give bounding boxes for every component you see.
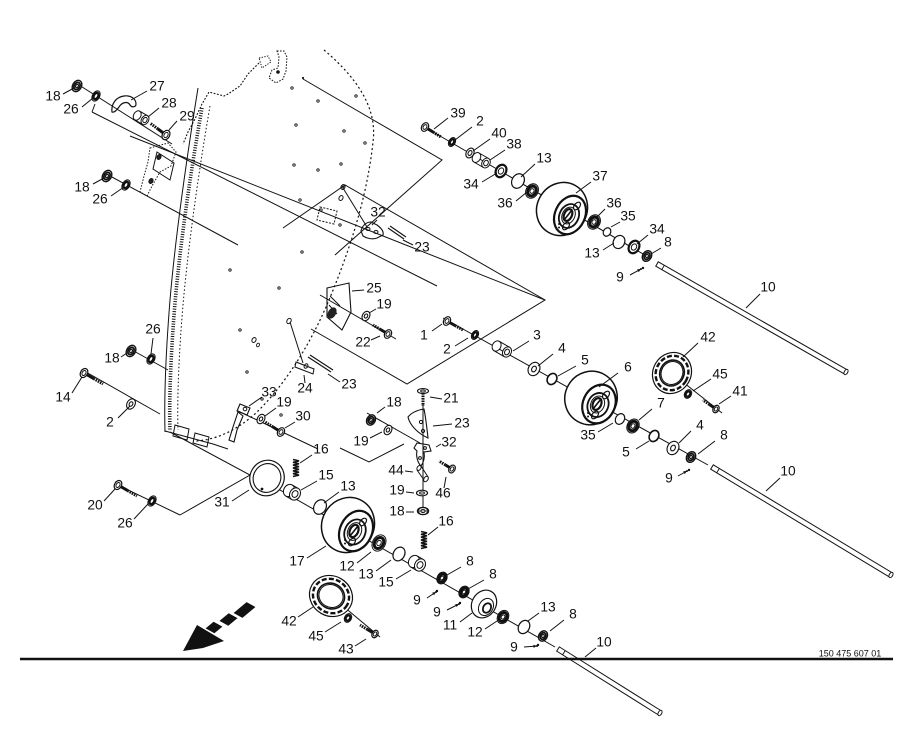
svg-text:29: 29 (179, 109, 195, 124)
svg-text:6: 6 (624, 360, 632, 375)
svg-text:9: 9 (616, 270, 624, 285)
svg-text:26: 26 (92, 192, 108, 207)
svg-text:42: 42 (700, 330, 715, 345)
svg-text:23: 23 (414, 240, 430, 255)
svg-text:11: 11 (443, 618, 457, 633)
svg-text:37: 37 (592, 169, 607, 184)
svg-text:33: 33 (261, 385, 277, 400)
svg-text:22: 22 (355, 335, 370, 350)
svg-text:20: 20 (87, 498, 103, 513)
svg-text:36: 36 (497, 196, 513, 211)
svg-text:9: 9 (510, 640, 518, 655)
svg-text:34: 34 (463, 177, 479, 192)
svg-text:18: 18 (74, 180, 90, 195)
svg-text:32: 32 (370, 205, 385, 220)
svg-text:35: 35 (620, 209, 636, 224)
svg-text:10: 10 (760, 280, 776, 295)
svg-text:32: 32 (441, 435, 456, 450)
svg-text:19: 19 (353, 434, 369, 449)
svg-text:34: 34 (649, 222, 665, 237)
svg-text:45: 45 (712, 367, 728, 382)
svg-text:35: 35 (580, 428, 596, 443)
svg-text:13: 13 (340, 479, 356, 494)
svg-text:16: 16 (313, 442, 329, 457)
svg-text:18: 18 (386, 395, 402, 410)
svg-text:39: 39 (450, 106, 466, 121)
svg-text:13: 13 (358, 567, 374, 582)
svg-text:18: 18 (104, 351, 120, 366)
svg-text:4: 4 (696, 418, 704, 433)
svg-text:16: 16 (438, 514, 454, 529)
svg-text:10: 10 (780, 464, 796, 479)
svg-text:19: 19 (276, 395, 292, 410)
svg-text:46: 46 (435, 486, 451, 501)
svg-text:26: 26 (63, 102, 79, 117)
svg-text:21: 21 (443, 391, 458, 406)
svg-text:13: 13 (584, 246, 600, 261)
svg-text:15: 15 (378, 575, 394, 590)
svg-text:24: 24 (297, 381, 313, 396)
svg-text:31: 31 (214, 495, 229, 510)
svg-text:4: 4 (558, 341, 566, 356)
svg-text:9: 9 (665, 471, 673, 486)
svg-text:3: 3 (533, 328, 541, 343)
svg-text:40: 40 (491, 126, 507, 141)
svg-text:8: 8 (664, 235, 672, 250)
svg-text:30: 30 (295, 409, 311, 424)
svg-text:8: 8 (720, 428, 728, 443)
svg-text:5: 5 (581, 353, 589, 368)
svg-text:8: 8 (569, 607, 577, 622)
svg-text:19: 19 (389, 483, 405, 498)
svg-text:27: 27 (149, 79, 164, 94)
svg-text:23: 23 (341, 377, 357, 392)
svg-text:8: 8 (466, 554, 474, 569)
svg-text:42: 42 (281, 614, 296, 629)
svg-text:10: 10 (596, 635, 612, 650)
svg-text:43: 43 (338, 642, 354, 657)
svg-text:1: 1 (420, 328, 428, 343)
svg-text:17: 17 (289, 554, 304, 569)
svg-text:12: 12 (339, 559, 354, 574)
svg-text:18: 18 (389, 504, 405, 519)
svg-text:2: 2 (476, 114, 484, 129)
svg-text:13: 13 (540, 600, 556, 615)
svg-text:5: 5 (622, 445, 630, 460)
svg-text:14: 14 (55, 390, 71, 405)
svg-text:26: 26 (145, 322, 161, 337)
svg-text:7: 7 (657, 396, 665, 411)
svg-text:28: 28 (161, 96, 177, 111)
svg-text:25: 25 (366, 281, 382, 296)
svg-text:19: 19 (376, 297, 392, 312)
svg-text:38: 38 (506, 137, 522, 152)
svg-text:13: 13 (536, 151, 552, 166)
svg-text:44: 44 (388, 463, 404, 478)
svg-text:9: 9 (433, 605, 441, 620)
svg-text:26: 26 (117, 516, 133, 531)
svg-text:9: 9 (413, 593, 421, 608)
svg-text:18: 18 (45, 89, 61, 104)
svg-text:8: 8 (489, 567, 497, 582)
svg-text:45: 45 (308, 629, 324, 644)
svg-text:12: 12 (467, 625, 482, 640)
svg-text:2: 2 (106, 415, 114, 430)
svg-text:150 475 607 01: 150 475 607 01 (819, 648, 882, 658)
svg-text:23: 23 (454, 416, 470, 431)
svg-text:2: 2 (443, 342, 451, 357)
svg-text:15: 15 (318, 468, 334, 483)
svg-text:41: 41 (732, 384, 747, 399)
